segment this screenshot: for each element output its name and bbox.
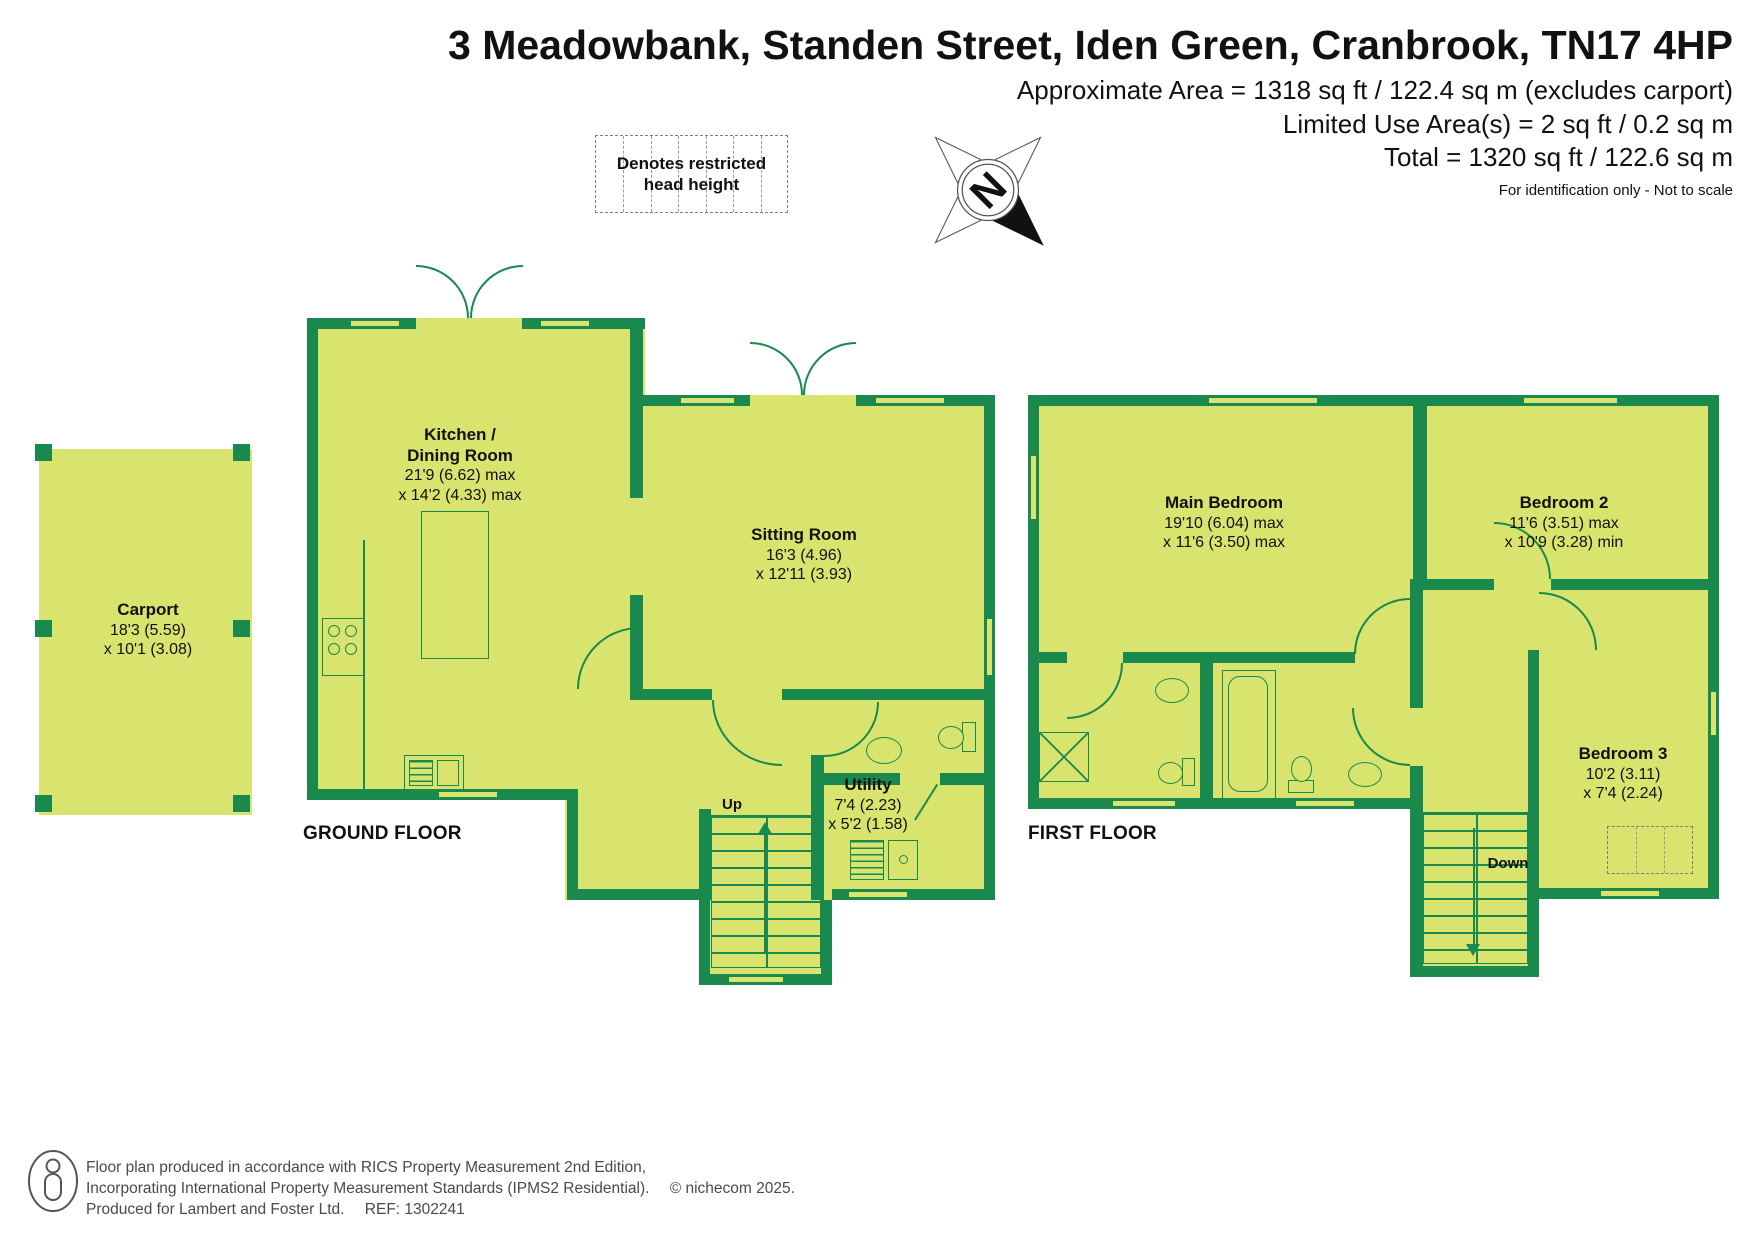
wall-segment bbox=[567, 789, 578, 900]
room-label-carport: Carport 18'3 (5.59) x 10'1 (3.08) bbox=[104, 600, 192, 660]
bath-icon bbox=[1222, 670, 1276, 800]
wc-toilet-icon bbox=[938, 726, 964, 749]
wall-segment bbox=[782, 689, 995, 700]
wall-segment bbox=[307, 789, 567, 800]
compass-north-icon: N bbox=[925, 127, 1051, 253]
french-door-arc bbox=[470, 265, 523, 318]
wall-segment bbox=[1708, 395, 1719, 899]
total-area: Total = 1320 sq ft / 122.6 sq m bbox=[1017, 141, 1733, 175]
wall-segment bbox=[1413, 395, 1427, 579]
window bbox=[986, 618, 993, 676]
page-title: 3 Meadowbank, Standen Street, Iden Green… bbox=[448, 22, 1733, 69]
ensuite-basin-icon bbox=[1155, 678, 1189, 703]
wall-segment bbox=[821, 900, 832, 985]
front-door-window bbox=[728, 976, 784, 983]
wall-segment bbox=[1200, 663, 1213, 809]
room-label-kitchen: Kitchen / Dining Room 21'9 (6.62) max x … bbox=[398, 425, 521, 506]
window bbox=[875, 397, 945, 404]
room-label-sitting: Sitting Room 16'3 (4.96) x 12'11 (3.93) bbox=[751, 525, 857, 585]
wc-basin-icon bbox=[866, 737, 902, 764]
footer-ref: REF: 1302241 bbox=[365, 1201, 465, 1218]
scale-disclaimer: For identification only - Not to scale bbox=[1017, 181, 1733, 200]
carport-post bbox=[35, 795, 52, 812]
wall-segment bbox=[699, 809, 711, 900]
wall-segment bbox=[630, 318, 643, 498]
wall-segment bbox=[1123, 652, 1355, 663]
stove-icon bbox=[322, 618, 364, 676]
footer-line2: Incorporating International Property Mea… bbox=[86, 1180, 649, 1197]
stairs-up-arrow bbox=[764, 834, 766, 954]
french-door-arc bbox=[416, 265, 469, 318]
carport-post bbox=[35, 620, 52, 637]
stairs-down-label: Down bbox=[1488, 855, 1529, 872]
kitchen-island bbox=[421, 511, 489, 659]
window bbox=[1208, 397, 1318, 404]
stairs-up bbox=[711, 815, 821, 968]
footer-disclaimer: Floor plan produced in accordance with R… bbox=[86, 1158, 795, 1220]
room-label-main-bedroom: Main Bedroom 19'10 (6.04) max x 11'6 (3.… bbox=[1163, 493, 1285, 553]
footer-line1: Floor plan produced in accordance with R… bbox=[86, 1159, 646, 1176]
window bbox=[1112, 800, 1176, 807]
utility-sink-icon bbox=[888, 840, 918, 880]
carport-post bbox=[35, 444, 52, 461]
first-floor-label: FIRST FLOOR bbox=[1028, 823, 1157, 845]
carport-post bbox=[233, 444, 250, 461]
french-door-arc bbox=[803, 342, 856, 395]
stairs-up-label: Up bbox=[722, 796, 742, 813]
wall-segment bbox=[1410, 579, 1423, 708]
kitchen-sink-icon bbox=[404, 755, 464, 791]
wall-segment bbox=[1528, 650, 1539, 899]
wall-segment bbox=[1410, 966, 1539, 977]
wall-segment bbox=[699, 900, 710, 985]
window bbox=[1710, 691, 1717, 736]
footer-copyright: © nichecom 2025. bbox=[670, 1180, 795, 1197]
area-summary: Approximate Area = 1318 sq ft / 122.4 sq… bbox=[1017, 74, 1733, 200]
window bbox=[350, 320, 400, 327]
wall-segment bbox=[1528, 899, 1539, 977]
restricted-head-height-area bbox=[1607, 826, 1693, 874]
person-icon bbox=[26, 1148, 80, 1214]
wall-segment bbox=[640, 689, 712, 700]
room-label-bedroom2: Bedroom 2 11'6 (3.51) max x 10'9 (3.28) … bbox=[1505, 493, 1624, 553]
bathroom-basin-icon bbox=[1348, 762, 1382, 787]
carport-post bbox=[233, 620, 250, 637]
french-door-arc bbox=[750, 342, 803, 395]
limited-use-area: Limited Use Area(s) = 2 sq ft / 0.2 sq m bbox=[1017, 108, 1733, 142]
legend-text: Denotes restricted head height bbox=[617, 153, 767, 196]
window bbox=[540, 320, 590, 327]
wall-segment bbox=[307, 318, 318, 800]
window bbox=[1523, 397, 1618, 404]
stairs-down-arrow bbox=[1473, 828, 1475, 946]
wall-segment bbox=[1551, 579, 1719, 590]
ground-floor-label: GROUND FLOOR bbox=[303, 823, 462, 845]
wc-toilet-tank bbox=[962, 722, 976, 752]
carport-post bbox=[233, 795, 250, 812]
shower-icon bbox=[1039, 732, 1089, 782]
washing-machine-icon bbox=[850, 840, 884, 880]
window bbox=[848, 891, 908, 898]
footer-line3: Produced for Lambert and Foster Ltd. bbox=[86, 1201, 344, 1218]
window bbox=[680, 397, 735, 404]
window bbox=[1295, 800, 1355, 807]
restricted-head-height-legend: Denotes restricted head height bbox=[595, 135, 788, 213]
stairs-up-arrowhead bbox=[758, 822, 772, 834]
ensuite-toilet-tank bbox=[1182, 758, 1195, 786]
wall-segment bbox=[1410, 766, 1423, 977]
window bbox=[1030, 455, 1037, 520]
wall-segment bbox=[567, 889, 699, 900]
stairs-down-arrowhead bbox=[1466, 944, 1480, 956]
window bbox=[438, 791, 498, 798]
ensuite-toilet-icon bbox=[1158, 762, 1183, 784]
floor-plan-canvas: 3 Meadowbank, Standen Street, Iden Green… bbox=[0, 0, 1755, 1241]
wall-segment bbox=[940, 773, 995, 785]
room-label-bedroom3: Bedroom 3 10'2 (3.11) x 7'4 (2.24) bbox=[1579, 744, 1668, 804]
window bbox=[1600, 890, 1660, 897]
bathroom-toilet-icon bbox=[1291, 756, 1312, 782]
approximate-area: Approximate Area = 1318 sq ft / 122.4 sq… bbox=[1017, 74, 1733, 108]
wall-segment bbox=[811, 755, 824, 900]
room-label-utility: Utility 7'4 (2.23) x 5'2 (1.58) bbox=[828, 775, 908, 835]
stairs-down bbox=[1423, 812, 1528, 964]
wall-segment bbox=[1415, 579, 1494, 590]
wall-segment bbox=[1028, 652, 1067, 663]
